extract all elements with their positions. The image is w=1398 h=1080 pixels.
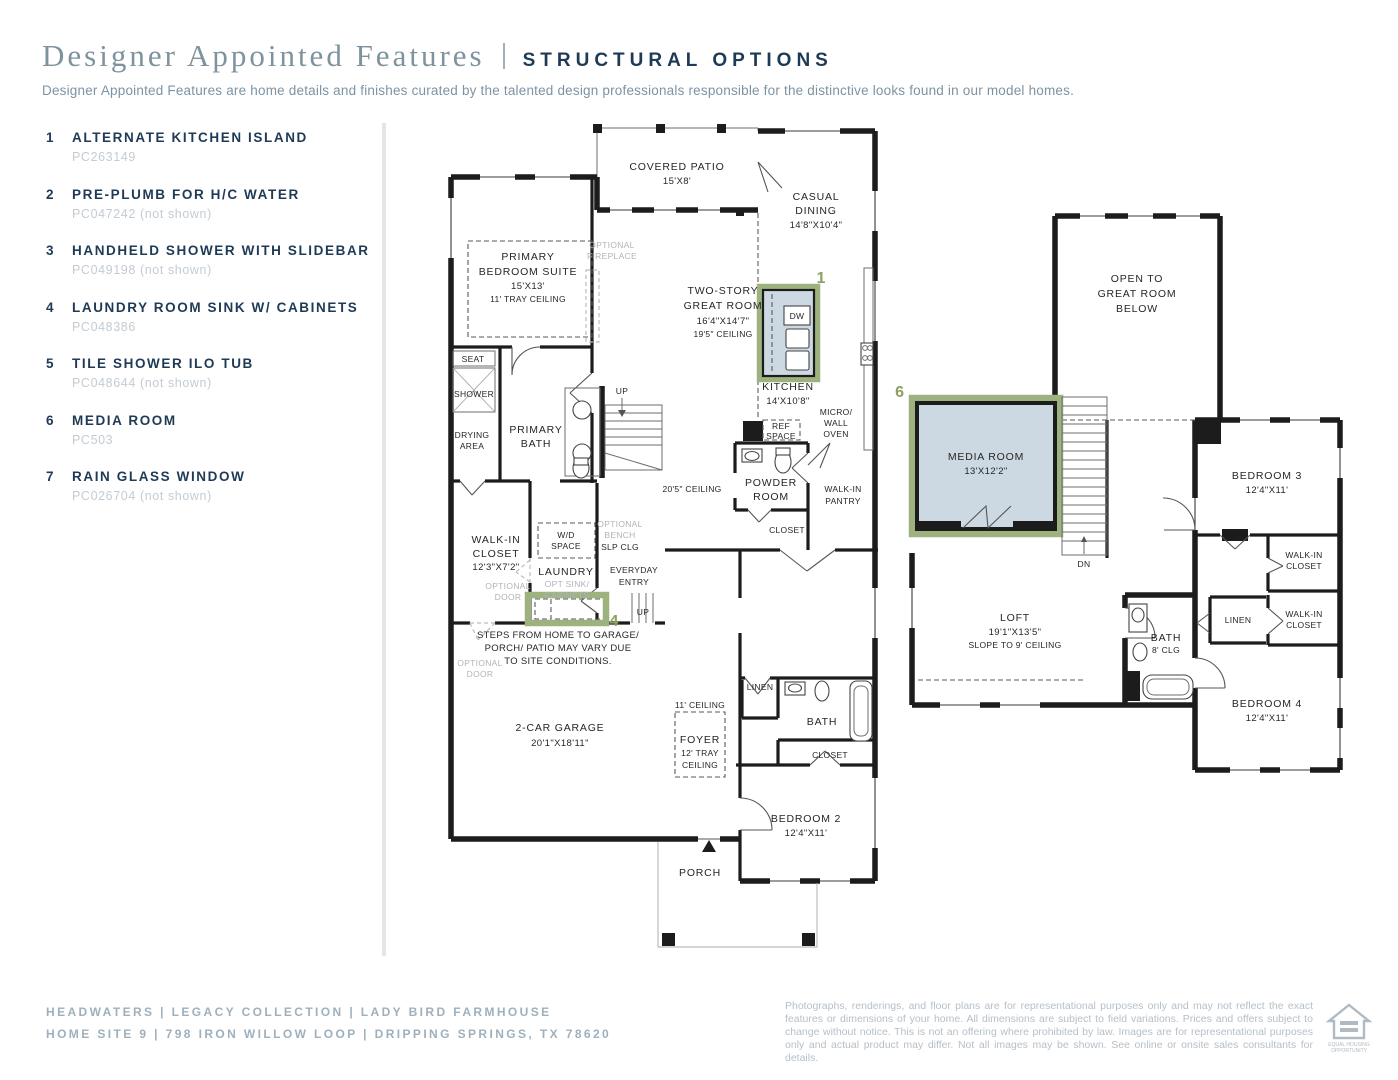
svg-text:DOOR: DOOR xyxy=(467,669,494,679)
feature-code: PC026704 (not shown) xyxy=(72,489,245,503)
wall-block xyxy=(1126,671,1140,701)
wall-block xyxy=(656,124,665,133)
feature-item: 4LAUNDRY ROOM SINK W/ CABINETSPC048386 xyxy=(46,300,376,334)
optional-bench-label: OPTIONAL xyxy=(597,519,642,529)
room-label-primary-bedroom: PRIMARY xyxy=(501,251,554,263)
room-label-bedroom4: BEDROOM 4 xyxy=(1232,698,1302,710)
footer-community-line: HEADWATERS | LEGACY COLLECTION | LADY BI… xyxy=(46,1005,666,1019)
svg-text:19'5" CEILING: 19'5" CEILING xyxy=(693,329,752,339)
page-description: Designer Appointed Features are home det… xyxy=(42,83,1362,98)
feature-title: ALTERNATE KITCHEN ISLAND xyxy=(72,130,308,145)
room-label-bath: BATH xyxy=(807,716,837,728)
room-label-walkin-closet: WALK-IN xyxy=(472,534,521,546)
svg-text:WALL: WALL xyxy=(824,418,848,428)
feature-title: LAUNDRY ROOM SINK W/ CABINETS xyxy=(72,300,358,315)
svg-text:DINING: DINING xyxy=(795,205,837,217)
svg-text:AREA: AREA xyxy=(460,441,484,451)
page-title: Designer Appointed Features xyxy=(42,38,485,74)
wall-block xyxy=(743,421,763,441)
svg-text:PANTRY: PANTRY xyxy=(825,496,861,506)
wall-block xyxy=(1222,529,1248,541)
svg-text:12'4"X11': 12'4"X11' xyxy=(1246,713,1289,724)
room-label-bath2: BATH xyxy=(1151,632,1181,644)
features-list: 1ALTERNATE KITCHEN ISLANDPC263149 2PRE-P… xyxy=(46,130,376,526)
stairs-up xyxy=(605,398,662,470)
eho-equals-top xyxy=(1340,1021,1358,1025)
feature-title: HANDHELD SHOWER WITH SLIDEBAR xyxy=(72,243,370,258)
room-label-bedroom3: BEDROOM 3 xyxy=(1232,470,1302,482)
room-label-porch: PORCH xyxy=(679,867,721,879)
svg-text:CLOSET: CLOSET xyxy=(1286,620,1322,630)
room-label-laundry: LAUNDRY xyxy=(538,566,594,578)
open-below-label: OPEN TO xyxy=(1111,273,1163,285)
feature-title: TILE SHOWER ILO TUB xyxy=(72,356,254,371)
svg-text:CABINETS: CABINETS xyxy=(545,590,590,600)
toilet-tank xyxy=(574,458,588,465)
feature-code: PC263149 xyxy=(72,150,308,164)
svg-text:GREAT ROOM: GREAT ROOM xyxy=(684,300,763,312)
feature-item: 3HANDHELD SHOWER WITH SLIDEBARPC049198 (… xyxy=(46,243,376,277)
svg-text:15'X13': 15'X13' xyxy=(511,281,545,292)
drying-area-label: DRYING xyxy=(455,430,490,440)
svg-text:FIREPLACE: FIREPLACE xyxy=(587,251,637,261)
feature-code: PC047242 (not shown) xyxy=(72,207,300,221)
dishwasher-label: DW xyxy=(790,311,805,321)
micro-wall-oven-label: MICRO/ xyxy=(820,407,853,417)
feature-item: 2PRE-PLUMB FOR H/C WATERPC047242 (not sh… xyxy=(46,187,376,221)
powder-fixtures xyxy=(742,448,791,473)
optional-door-label: OPTIONAL xyxy=(485,581,530,591)
opt-sink-label: OPT SINK/ xyxy=(545,579,590,589)
room-label-great-room: TWO-STORY xyxy=(688,285,759,297)
room-label-casual-dining: CASUAL xyxy=(793,191,840,203)
feature-code: PC048386 xyxy=(72,320,358,334)
walkin-closet-label: WALK-IN xyxy=(1285,609,1322,619)
room-label-pantry: WALK-IN xyxy=(824,484,861,494)
linen-label: LINEN xyxy=(747,682,774,692)
feature-number: 6 xyxy=(46,413,72,447)
svg-text:19'1"X13'5": 19'1"X13'5" xyxy=(989,627,1042,638)
shower-label: SHOWER xyxy=(454,389,494,399)
feature-number: 5 xyxy=(46,356,72,390)
feature-number: 2 xyxy=(46,187,72,221)
svg-text:BELOW: BELOW xyxy=(1116,303,1158,315)
room-label-powder: POWDER xyxy=(745,477,797,489)
feature-number: 1 xyxy=(46,130,72,164)
seat-label: SEAT xyxy=(462,354,485,364)
wall-block xyxy=(717,124,726,133)
feature-marker-1: 1 xyxy=(817,270,826,287)
feature-marker-4: 4 xyxy=(610,613,619,630)
feature-number: 7 xyxy=(46,469,72,503)
front-door-arrow xyxy=(702,840,716,852)
svg-text:11' TRAY CEILING: 11' TRAY CEILING xyxy=(490,294,566,304)
svg-text:BENCH: BENCH xyxy=(604,530,635,540)
svg-text:PORCH/ PATIO MAY VARY DUE: PORCH/ PATIO MAY VARY DUE xyxy=(485,643,632,654)
svg-text:SPACE: SPACE xyxy=(766,431,796,441)
kitchen-island-highlight xyxy=(760,287,817,379)
feature-item: 6MEDIA ROOMPC503 xyxy=(46,413,376,447)
wall-block xyxy=(736,208,744,216)
room-label-primary-bath: PRIMARY xyxy=(509,424,562,436)
ceiling-height-label: 20'5" CEILING xyxy=(662,484,721,494)
svg-text:SPACE: SPACE xyxy=(551,541,581,551)
svg-text:12' TRAY: 12' TRAY xyxy=(681,748,719,758)
wall-block xyxy=(593,124,602,133)
feature-item: 7RAIN GLASS WINDOWPC026704 (not shown) xyxy=(46,469,376,503)
feature-number: 4 xyxy=(46,300,72,334)
equal-housing-logo: EQUAL HOUSING OPPORTUNITY xyxy=(1326,1002,1372,1054)
closet-label: CLOSET xyxy=(769,525,805,535)
everyday-entry-label: EVERYDAY xyxy=(610,565,658,575)
svg-text:DOOR: DOOR xyxy=(495,592,522,602)
feature-item: 5TILE SHOWER ILO TUBPC048644 (not shown) xyxy=(46,356,376,390)
footer-left: HEADWATERS | LEGACY COLLECTION | LADY BI… xyxy=(46,1005,666,1049)
entry-up-label: UP xyxy=(637,607,649,617)
svg-text:ENTRY: ENTRY xyxy=(619,577,649,587)
feature-title: RAIN GLASS WINDOW xyxy=(72,469,245,484)
slp-clg-label: SLP CLG xyxy=(601,542,639,552)
room-label-media: MEDIA ROOM xyxy=(948,451,1024,463)
kitchen-counter xyxy=(861,268,873,450)
svg-text:16'4"X14'7": 16'4"X14'7" xyxy=(697,316,750,327)
linen-label: LINEN xyxy=(1225,615,1252,625)
room-label-garage: 2-CAR GARAGE xyxy=(516,722,605,734)
title-divider xyxy=(503,43,505,69)
svg-text:CEILING: CEILING xyxy=(682,760,718,770)
bath2-fixtures xyxy=(785,681,872,741)
floor-plans: COVERED PATIO 15'X8' CASUAL DINING 14'8"… xyxy=(440,118,1380,968)
wd-space-label: W/D xyxy=(557,530,574,540)
walkin-closet-label: WALK-IN xyxy=(1285,550,1322,560)
wall-block xyxy=(1197,422,1221,444)
room-label-bedroom2: BEDROOM 2 xyxy=(771,813,841,825)
feature-item: 1ALTERNATE KITCHEN ISLANDPC263149 xyxy=(46,130,376,164)
header: Designer Appointed Features STRUCTURAL O… xyxy=(42,38,1362,98)
svg-text:BEDROOM SUITE: BEDROOM SUITE xyxy=(479,266,578,278)
svg-text:14'8"X10'4": 14'8"X10'4" xyxy=(790,220,843,231)
svg-text:BATH: BATH xyxy=(521,438,551,450)
foyer-ceiling-label: 11' CEILING xyxy=(675,700,725,710)
svg-text:8' CLG: 8' CLG xyxy=(1152,645,1180,655)
room-dim: 15'X8' xyxy=(663,176,691,187)
svg-text:12'4"X11': 12'4"X11' xyxy=(1246,485,1289,496)
second-floor-plan: OPEN TO GREAT ROOM BELOW 6 MEDIA ROOM 13… xyxy=(895,216,1340,770)
room-label-kitchen: KITCHEN xyxy=(762,381,814,393)
svg-text:14'X10'8": 14'X10'8" xyxy=(766,396,809,407)
exterior-walls xyxy=(451,131,875,881)
svg-text:12'4"X11': 12'4"X11' xyxy=(785,828,828,839)
first-floor-plan: COVERED PATIO 15'X8' CASUAL DINING 14'8"… xyxy=(451,124,878,947)
stairs-up-label: UP xyxy=(616,386,628,396)
eho-equals-bottom xyxy=(1340,1028,1358,1032)
feature-number: 3 xyxy=(46,243,72,277)
feature-title: MEDIA ROOM xyxy=(72,413,177,428)
svg-text:CLOSET: CLOSET xyxy=(1286,561,1322,571)
room-label-covered-patio: COVERED PATIO xyxy=(629,161,724,173)
optional-fireplace-label: OPTIONAL xyxy=(589,240,634,250)
feature-code: PC049198 (not shown) xyxy=(72,263,370,277)
feature-code: PC048644 (not shown) xyxy=(72,376,254,390)
svg-text:SLOPE TO 9' CEILING: SLOPE TO 9' CEILING xyxy=(969,640,1062,650)
vertical-divider xyxy=(382,123,386,956)
page-subtitle-tag: STRUCTURAL OPTIONS xyxy=(523,50,833,72)
footer-site-line: HOME SITE 9 | 798 IRON WILLOW LOOP | DRI… xyxy=(46,1027,666,1041)
svg-text:ROOM: ROOM xyxy=(753,491,789,503)
feature-code: PC503 xyxy=(72,433,177,447)
feature-marker-6: 6 xyxy=(895,384,904,401)
stairs-dn-label: DN xyxy=(1078,559,1091,569)
footer-disclaimer: Photographs, renderings, and floor plans… xyxy=(785,1000,1313,1065)
feature-title: PRE-PLUMB FOR H/C WATER xyxy=(72,187,300,202)
svg-text:CLOSET: CLOSET xyxy=(473,548,520,560)
room-label-foyer: FOYER xyxy=(680,734,720,746)
svg-text:20'1"X18'11": 20'1"X18'11" xyxy=(531,738,589,749)
eho-text-line2: OPPORTUNITY xyxy=(1331,1048,1368,1054)
svg-text:13'X12'2": 13'X12'2" xyxy=(964,466,1007,477)
site-steps-note: STEPS FROM HOME TO GARAGE/ xyxy=(477,630,639,641)
ref-space-label: REF xyxy=(772,421,790,431)
svg-text:OVEN: OVEN xyxy=(823,429,848,439)
svg-text:GREAT ROOM: GREAT ROOM xyxy=(1098,288,1177,300)
room-label-loft: LOFT xyxy=(1000,612,1030,624)
windows xyxy=(451,131,875,881)
closet-label: CLOSET xyxy=(812,750,848,760)
porch-outline xyxy=(658,842,817,947)
design-sheet-page: { "colors": { "navy": "#1e3a56", "title_… xyxy=(0,0,1398,1080)
svg-text:12'3"X7'2": 12'3"X7'2" xyxy=(472,562,519,573)
svg-text:TO SITE CONDITIONS.: TO SITE CONDITIONS. xyxy=(504,656,611,667)
optional-door-label: OPTIONAL xyxy=(457,658,502,668)
stairs-down xyxy=(1062,397,1107,555)
